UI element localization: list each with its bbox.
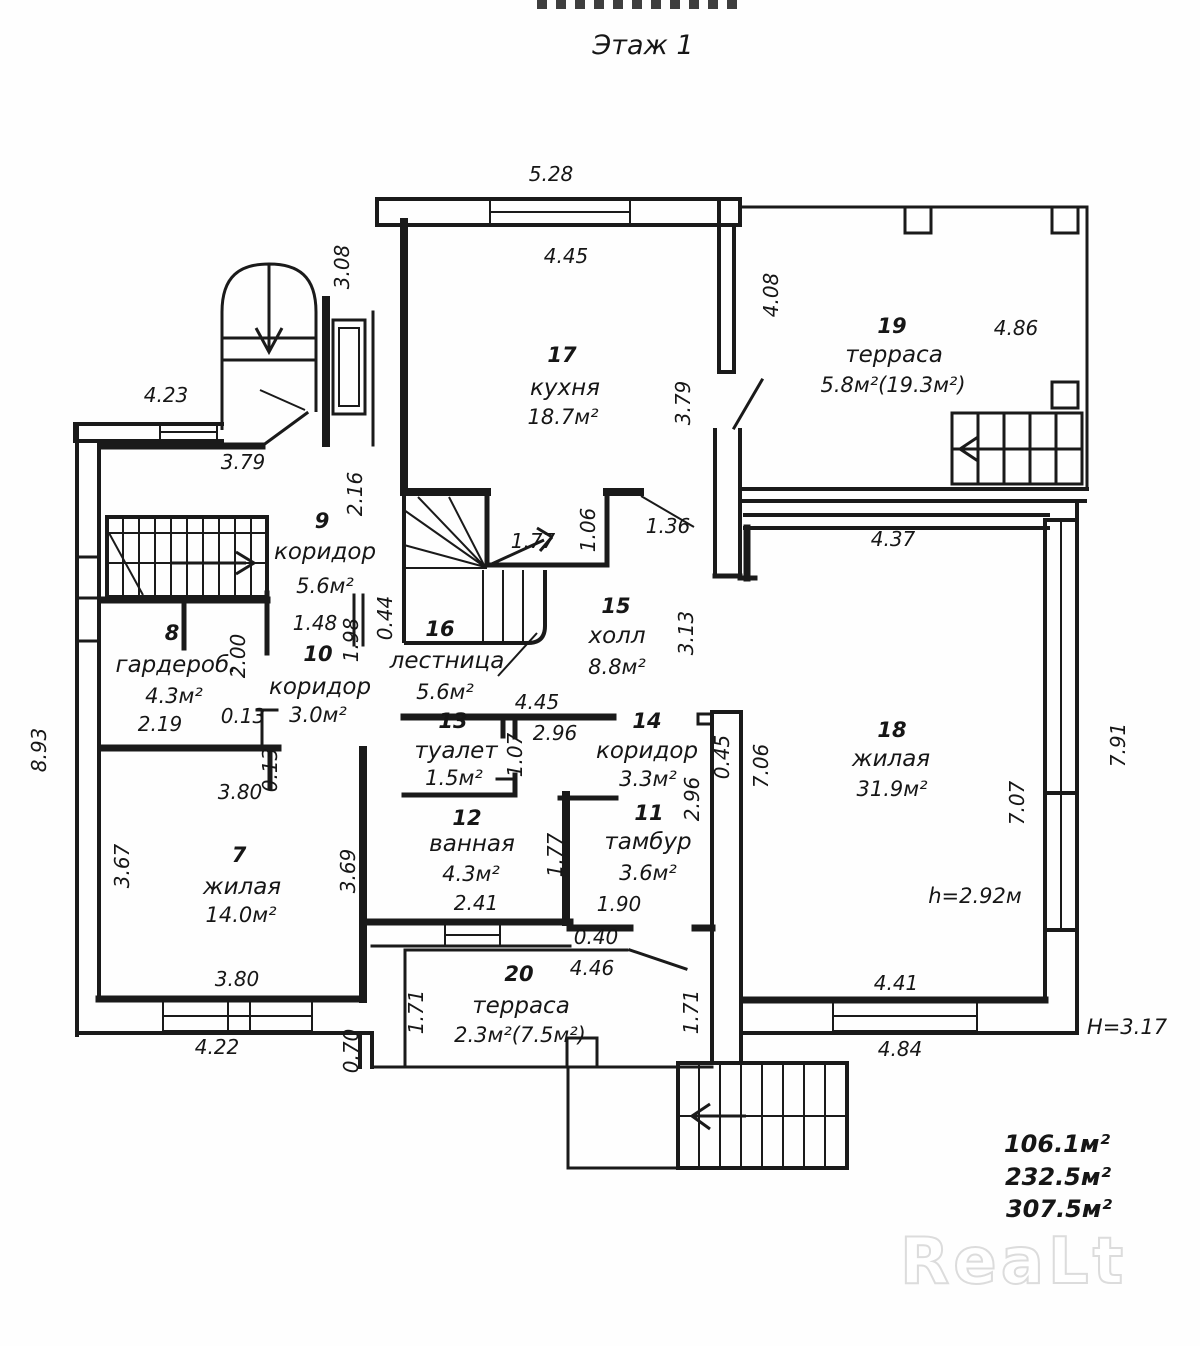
room-10-name: коридор <box>269 674 371 700</box>
room-13-number: 13 <box>438 709 467 733</box>
dim: 1.71 <box>679 990 703 1035</box>
dim: 2.16 <box>343 472 367 517</box>
area-totals: 106.1м² 232.5м² 307.5м² <box>1004 1130 1113 1223</box>
dim: 5.28 <box>529 162 574 186</box>
dim: 1.77 <box>543 832 567 877</box>
stair-exterior-south <box>678 1063 847 1168</box>
room-15-area: 8.8м² <box>588 655 646 679</box>
dim: 0.13 <box>258 748 282 793</box>
room-19-number: 19 <box>877 314 906 338</box>
dim: 8.93 <box>27 728 51 773</box>
room-16-number: 16 <box>425 617 454 641</box>
stair-terrace19 <box>952 413 1082 484</box>
room-13-name: туалет <box>414 738 498 764</box>
room-18-name: жилая <box>851 746 930 772</box>
window-kitchen <box>490 199 630 225</box>
dim: 4.46 <box>570 956 615 980</box>
room-11-area: 3.6м² <box>619 861 677 885</box>
dim: 4.08 <box>759 273 783 318</box>
dim: 0.40 <box>574 925 619 949</box>
dim: 3.08 <box>330 245 354 290</box>
room-17-area: 18.7м² <box>527 405 599 429</box>
watermark-logo: ReaLt <box>900 1225 1127 1299</box>
room-15-number: 15 <box>601 594 630 618</box>
room-10-area: 3.0м² <box>289 703 347 727</box>
entrance-door <box>333 320 365 414</box>
dim: 0.13 <box>221 704 266 728</box>
room-7-name: жилая <box>202 874 281 900</box>
room-16-name: лестница <box>389 648 505 674</box>
dim: 4.41 <box>874 971 919 995</box>
dim: 3.79 <box>671 381 695 426</box>
building-height-note: H=3.17 <box>1087 1015 1168 1039</box>
room-19-area: 5.8м²(19.3м²) <box>820 373 965 397</box>
dim: 0.45 <box>710 735 734 780</box>
total-area-1: 106.1м² <box>1004 1130 1111 1158</box>
room-20-number: 20 <box>504 962 533 986</box>
dim: 0.44 <box>373 596 397 641</box>
stair-direction-arrow <box>960 437 1006 461</box>
dim: 0.70 <box>339 1029 363 1074</box>
dim: 4.84 <box>878 1037 923 1061</box>
room-18-area: 31.9м² <box>856 777 928 801</box>
room-8-number: 8 <box>165 621 180 645</box>
room-7-number: 7 <box>232 843 247 867</box>
dim: 4.37 <box>871 527 916 551</box>
dim: 1.77 <box>511 529 556 553</box>
dim: 3.69 <box>336 849 360 894</box>
room-8-name: гардероб. <box>116 652 237 678</box>
room-18-number: 18 <box>877 718 906 742</box>
dim: 3.67 <box>110 843 134 888</box>
total-area-2: 232.5м² <box>1005 1163 1112 1191</box>
room-19-name: терраса <box>845 342 943 368</box>
dim: 1.06 <box>576 508 600 553</box>
room-17-name: кухня <box>530 375 600 401</box>
room-9-name: коридор <box>274 539 376 565</box>
room-14-name: коридор <box>596 738 698 764</box>
room-11-name: тамбур <box>604 829 691 855</box>
room-10-number: 10 <box>303 642 332 666</box>
dim: 3.79 <box>221 450 266 474</box>
dim: 3.13 <box>674 611 698 656</box>
window-top-left <box>160 424 217 441</box>
dim: 2.41 <box>454 891 499 915</box>
room-9-area: 5.6м² <box>296 574 354 598</box>
window-room7 <box>163 1001 312 1031</box>
dim: 2.96 <box>533 721 578 745</box>
room-12-area: 4.3м² <box>442 862 500 886</box>
room-20-area: 2.3м²(7.5м²) <box>454 1023 586 1047</box>
dim: 7.07 <box>1005 780 1029 825</box>
dim: 1.98 <box>339 618 363 663</box>
room-16-area: 5.6м² <box>416 680 474 704</box>
room-11-number: 11 <box>634 801 663 825</box>
dim: 7.06 <box>749 744 773 789</box>
room-15-name: холл <box>587 623 645 649</box>
stair-direction-arrow <box>170 552 254 574</box>
room-13-area: 1.5м² <box>425 766 483 790</box>
dim: 4.86 <box>994 316 1039 340</box>
dim: 4.23 <box>144 383 189 407</box>
dim: 1.36 <box>646 514 691 538</box>
dim: 7.91 <box>1106 723 1130 768</box>
dim: 3.80 <box>215 967 260 991</box>
floor-plan-drawing: Этаж 1 5.28 4.45 4.23 3.79 4.86 1.36 1.7… <box>0 0 1200 1346</box>
dim: 2.19 <box>138 712 183 736</box>
dimensions-horizontal: 5.28 4.45 4.23 3.79 4.86 1.36 1.77 4.37 … <box>138 162 1168 1061</box>
page-title: Этаж 1 <box>591 30 693 61</box>
room-20-name: терраса <box>472 993 570 1019</box>
room-8-area: 4.3м² <box>145 684 203 708</box>
room-14-number: 14 <box>632 709 661 733</box>
dim: 4.45 <box>515 690 560 714</box>
room-17-number: 17 <box>547 343 577 367</box>
room-labels: 17 кухня 18.7м² 19 терраса 5.8м²(19.3м²)… <box>116 314 966 1047</box>
dim: 1.71 <box>404 990 428 1035</box>
room-12-number: 12 <box>452 806 481 830</box>
floor-plan-page: Этаж 1 5.28 4.45 4.23 3.79 4.86 1.36 1.7… <box>0 0 1200 1346</box>
dim: 1.48 <box>293 611 338 635</box>
stair-flight-left <box>107 517 267 597</box>
total-area-3: 307.5м² <box>1006 1195 1113 1223</box>
dim: 4.22 <box>195 1035 240 1059</box>
room-7-area: 14.0м² <box>205 903 277 927</box>
dim: 1.90 <box>597 892 642 916</box>
dim: 4.45 <box>544 244 589 268</box>
room-12-name: ванная <box>429 831 515 857</box>
room-9-number: 9 <box>315 509 330 533</box>
entrance-porch <box>222 264 316 430</box>
dim: 3.80 <box>218 780 263 804</box>
window-room18-south <box>833 1002 977 1031</box>
dim: 1.07 <box>503 732 527 777</box>
ceiling-height-note: h=2.92м <box>928 884 1022 908</box>
dim: 2.96 <box>680 777 704 822</box>
room-14-area: 3.3м² <box>619 767 677 791</box>
window-bath <box>445 924 500 946</box>
